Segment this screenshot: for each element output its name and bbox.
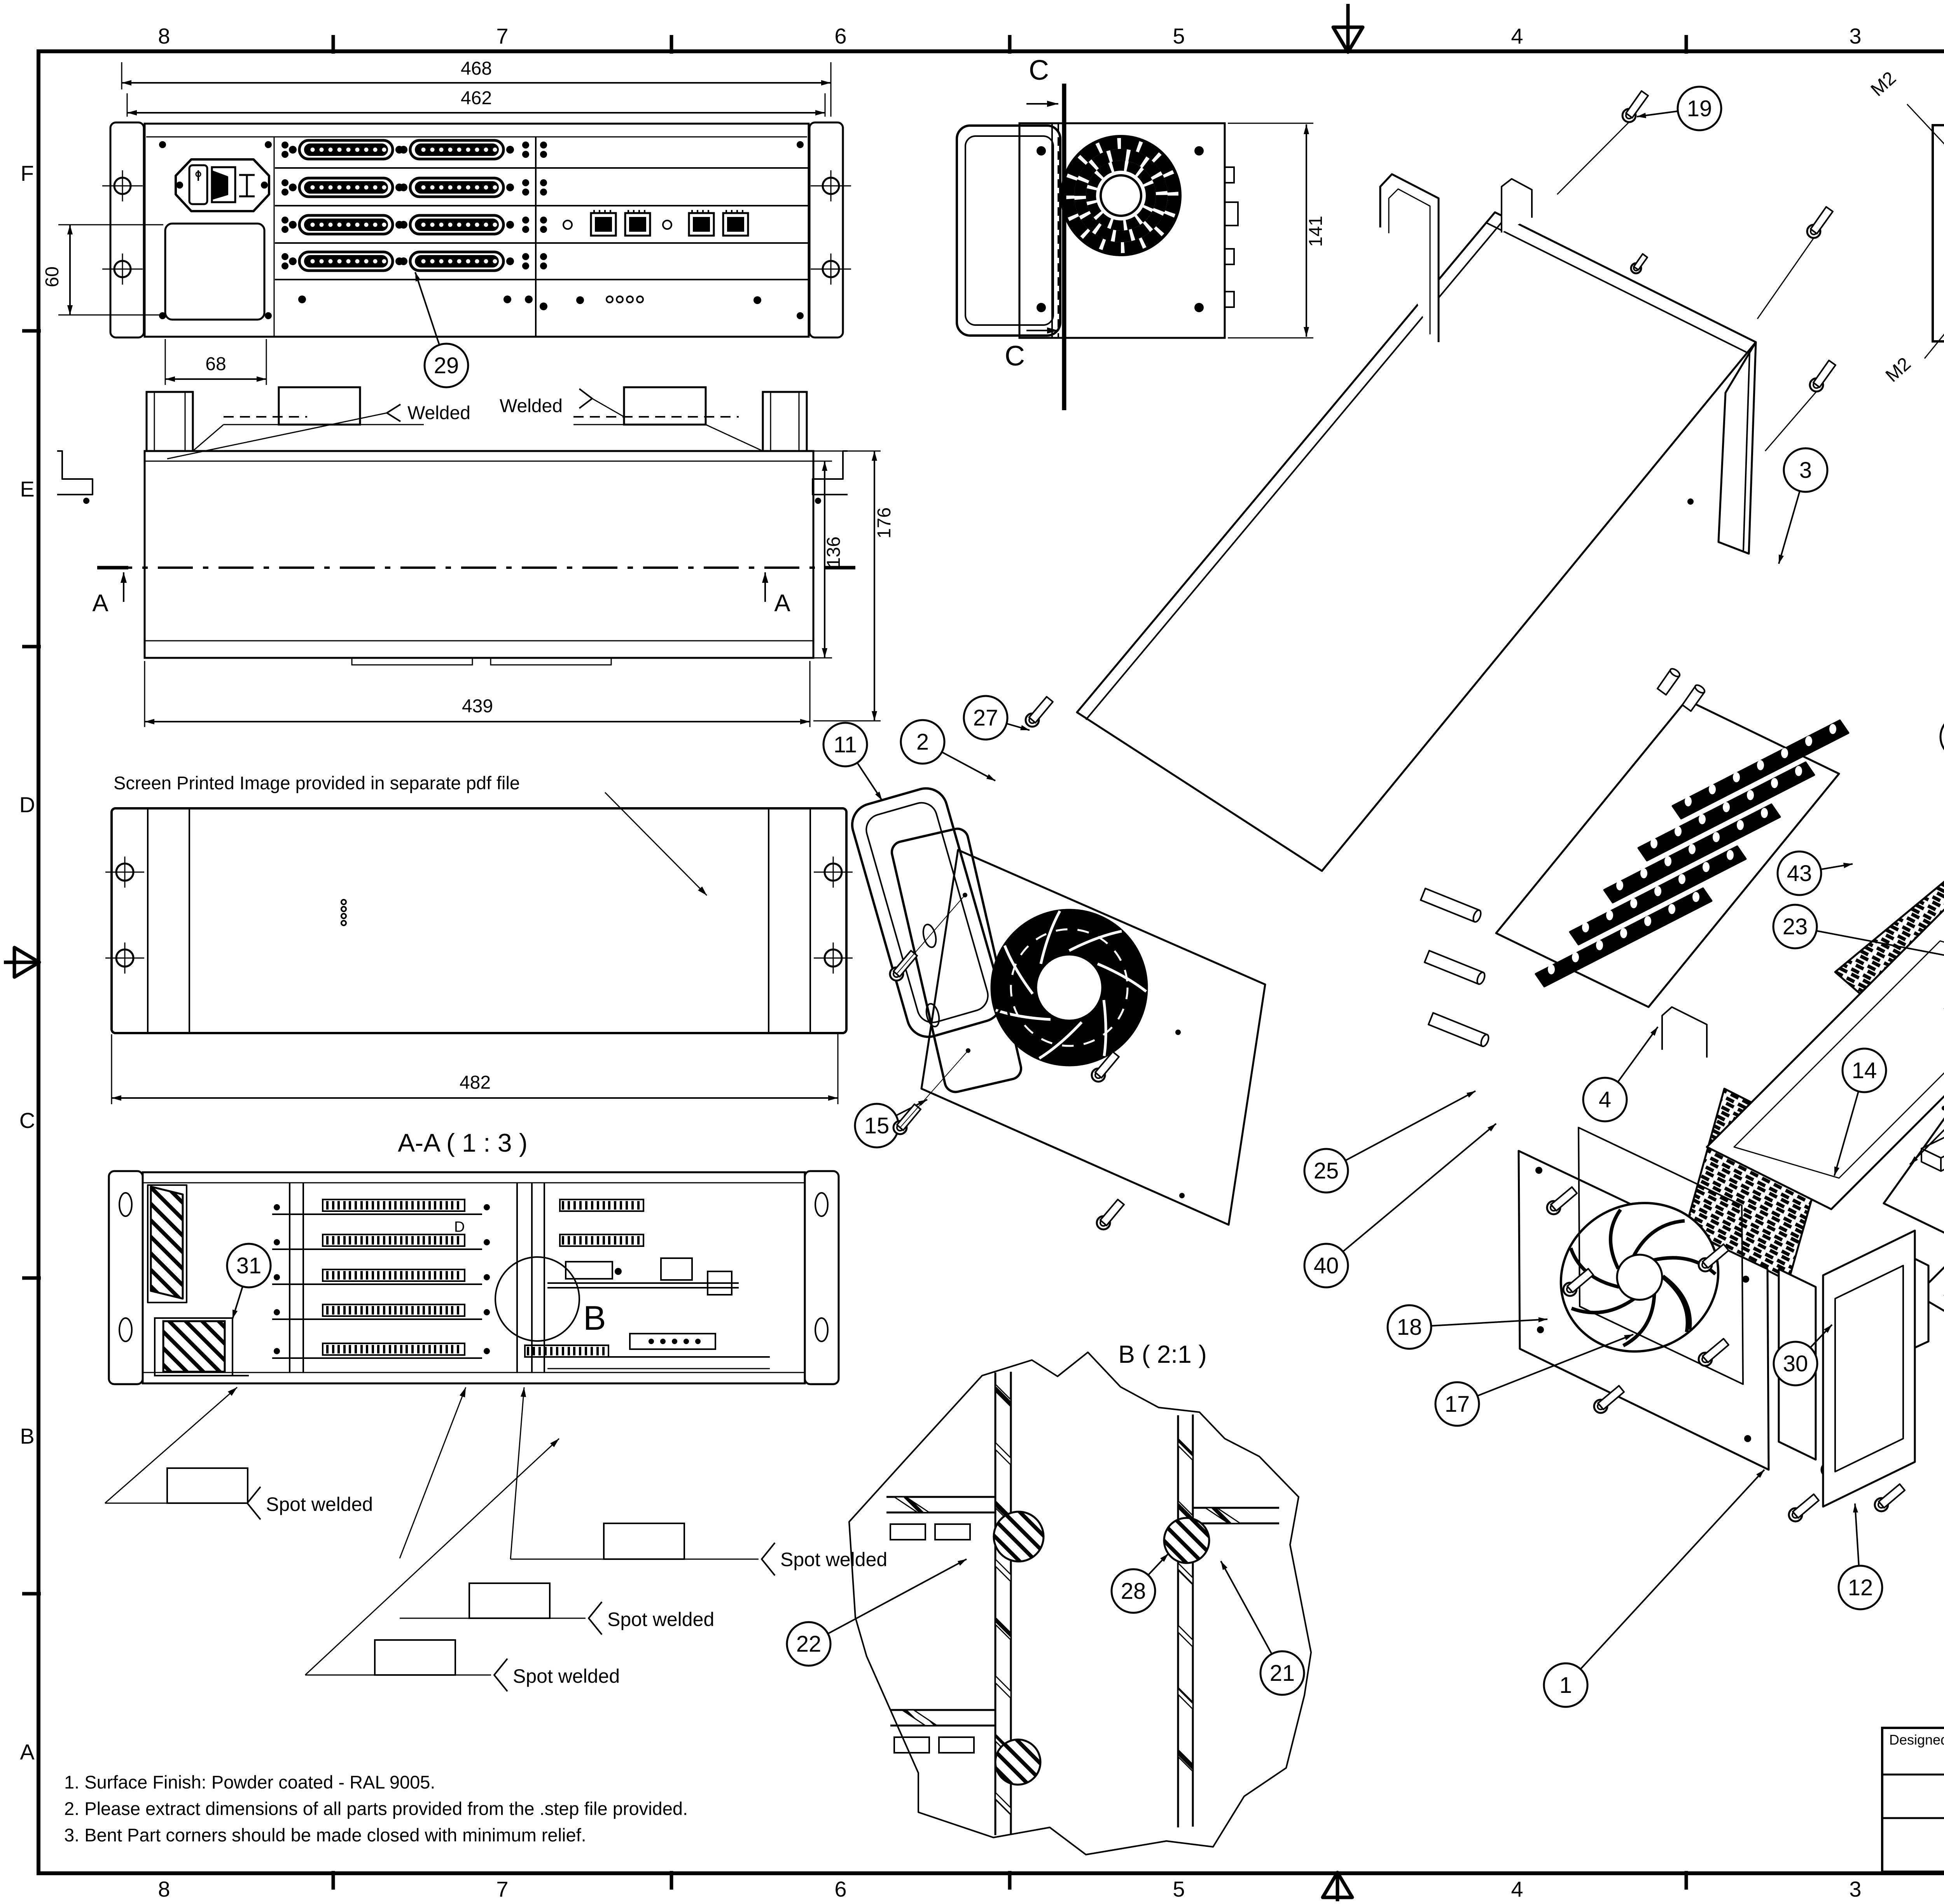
svg-text:5: 5 bbox=[1173, 1877, 1185, 1901]
svg-text:27: 27 bbox=[973, 705, 998, 731]
svg-text:B: B bbox=[583, 1299, 606, 1337]
svg-text:4: 4 bbox=[1511, 1877, 1523, 1901]
svg-text:B: B bbox=[20, 1424, 34, 1448]
svg-text:4: 4 bbox=[1511, 24, 1523, 48]
svg-text:D: D bbox=[19, 792, 35, 817]
svg-text:176: 176 bbox=[874, 507, 895, 539]
svg-text:Spot welded: Spot welded bbox=[513, 1665, 620, 1687]
svg-text:468: 468 bbox=[461, 58, 492, 79]
svg-text:A: A bbox=[20, 1740, 35, 1764]
svg-text:C: C bbox=[19, 1108, 35, 1133]
svg-text:2. Please extract dimensions o: 2. Please extract dimensions of all part… bbox=[64, 1798, 688, 1819]
svg-text:B ( 2:1 ): B ( 2:1 ) bbox=[1118, 1340, 1207, 1368]
svg-text:136: 136 bbox=[823, 537, 844, 568]
svg-text:3: 3 bbox=[1799, 458, 1812, 483]
svg-text:15: 15 bbox=[864, 1113, 890, 1138]
svg-text:25: 25 bbox=[1314, 1158, 1339, 1184]
svg-text:8: 8 bbox=[158, 24, 170, 48]
svg-text:30: 30 bbox=[1783, 1351, 1808, 1376]
svg-text:43: 43 bbox=[1787, 861, 1812, 886]
svg-text:5: 5 bbox=[1173, 24, 1185, 48]
svg-text:D: D bbox=[454, 1219, 465, 1235]
svg-text:19: 19 bbox=[1687, 96, 1712, 121]
svg-text:23: 23 bbox=[1783, 914, 1808, 939]
svg-text:439: 439 bbox=[462, 696, 493, 717]
svg-text:Spot welded: Spot welded bbox=[780, 1549, 887, 1570]
svg-text:F: F bbox=[21, 161, 34, 185]
svg-text:C: C bbox=[1029, 55, 1049, 86]
svg-text:12: 12 bbox=[1848, 1575, 1873, 1600]
svg-text:68: 68 bbox=[205, 354, 226, 374]
svg-text:3. Bent Part corners should be: 3. Bent Part corners should be made clos… bbox=[64, 1825, 586, 1845]
svg-text:Welded: Welded bbox=[407, 403, 470, 423]
svg-text:A: A bbox=[774, 590, 790, 617]
svg-text:11: 11 bbox=[834, 732, 857, 757]
svg-text:28: 28 bbox=[1121, 1579, 1146, 1604]
svg-text:C: C bbox=[1005, 341, 1025, 372]
svg-text:482: 482 bbox=[460, 1072, 491, 1093]
svg-text:2: 2 bbox=[916, 729, 929, 755]
svg-text:18: 18 bbox=[1397, 1315, 1422, 1340]
svg-text:A: A bbox=[92, 590, 108, 617]
svg-text:Spot welded: Spot welded bbox=[266, 1493, 373, 1515]
svg-text:6: 6 bbox=[834, 24, 846, 48]
svg-text:Screen Printed Image provided: Screen Printed Image provided in separat… bbox=[114, 773, 520, 793]
svg-text:1: 1 bbox=[1559, 1673, 1572, 1698]
svg-text:A-A ( 1 : 3 ): A-A ( 1 : 3 ) bbox=[398, 1128, 528, 1157]
svg-text:E: E bbox=[20, 477, 34, 501]
svg-text:7: 7 bbox=[496, 1877, 508, 1901]
svg-text:22: 22 bbox=[796, 1631, 822, 1657]
svg-text:31: 31 bbox=[236, 1253, 262, 1278]
svg-text:17: 17 bbox=[1445, 1392, 1470, 1417]
svg-text:1. Surface Finish: Powder coat: 1. Surface Finish: Powder coated - RAL 9… bbox=[64, 1772, 435, 1792]
svg-text:14: 14 bbox=[1852, 1058, 1877, 1083]
svg-text:7: 7 bbox=[496, 24, 508, 48]
svg-text:3: 3 bbox=[1849, 1877, 1861, 1901]
svg-text:4: 4 bbox=[1599, 1087, 1611, 1112]
svg-text:Welded: Welded bbox=[500, 396, 563, 416]
svg-text:Spot welded: Spot welded bbox=[607, 1609, 714, 1630]
svg-text:21: 21 bbox=[1270, 1661, 1295, 1686]
svg-text:141: 141 bbox=[1306, 216, 1326, 247]
svg-text:3: 3 bbox=[1849, 24, 1861, 48]
svg-text:40: 40 bbox=[1314, 1253, 1339, 1278]
svg-text:29: 29 bbox=[434, 353, 459, 378]
svg-text:Designed by: Designed by bbox=[1889, 1732, 1944, 1748]
svg-text:462: 462 bbox=[461, 88, 492, 108]
svg-text:60: 60 bbox=[42, 266, 63, 287]
svg-text:6: 6 bbox=[834, 1877, 846, 1901]
svg-text:8: 8 bbox=[158, 1877, 170, 1901]
